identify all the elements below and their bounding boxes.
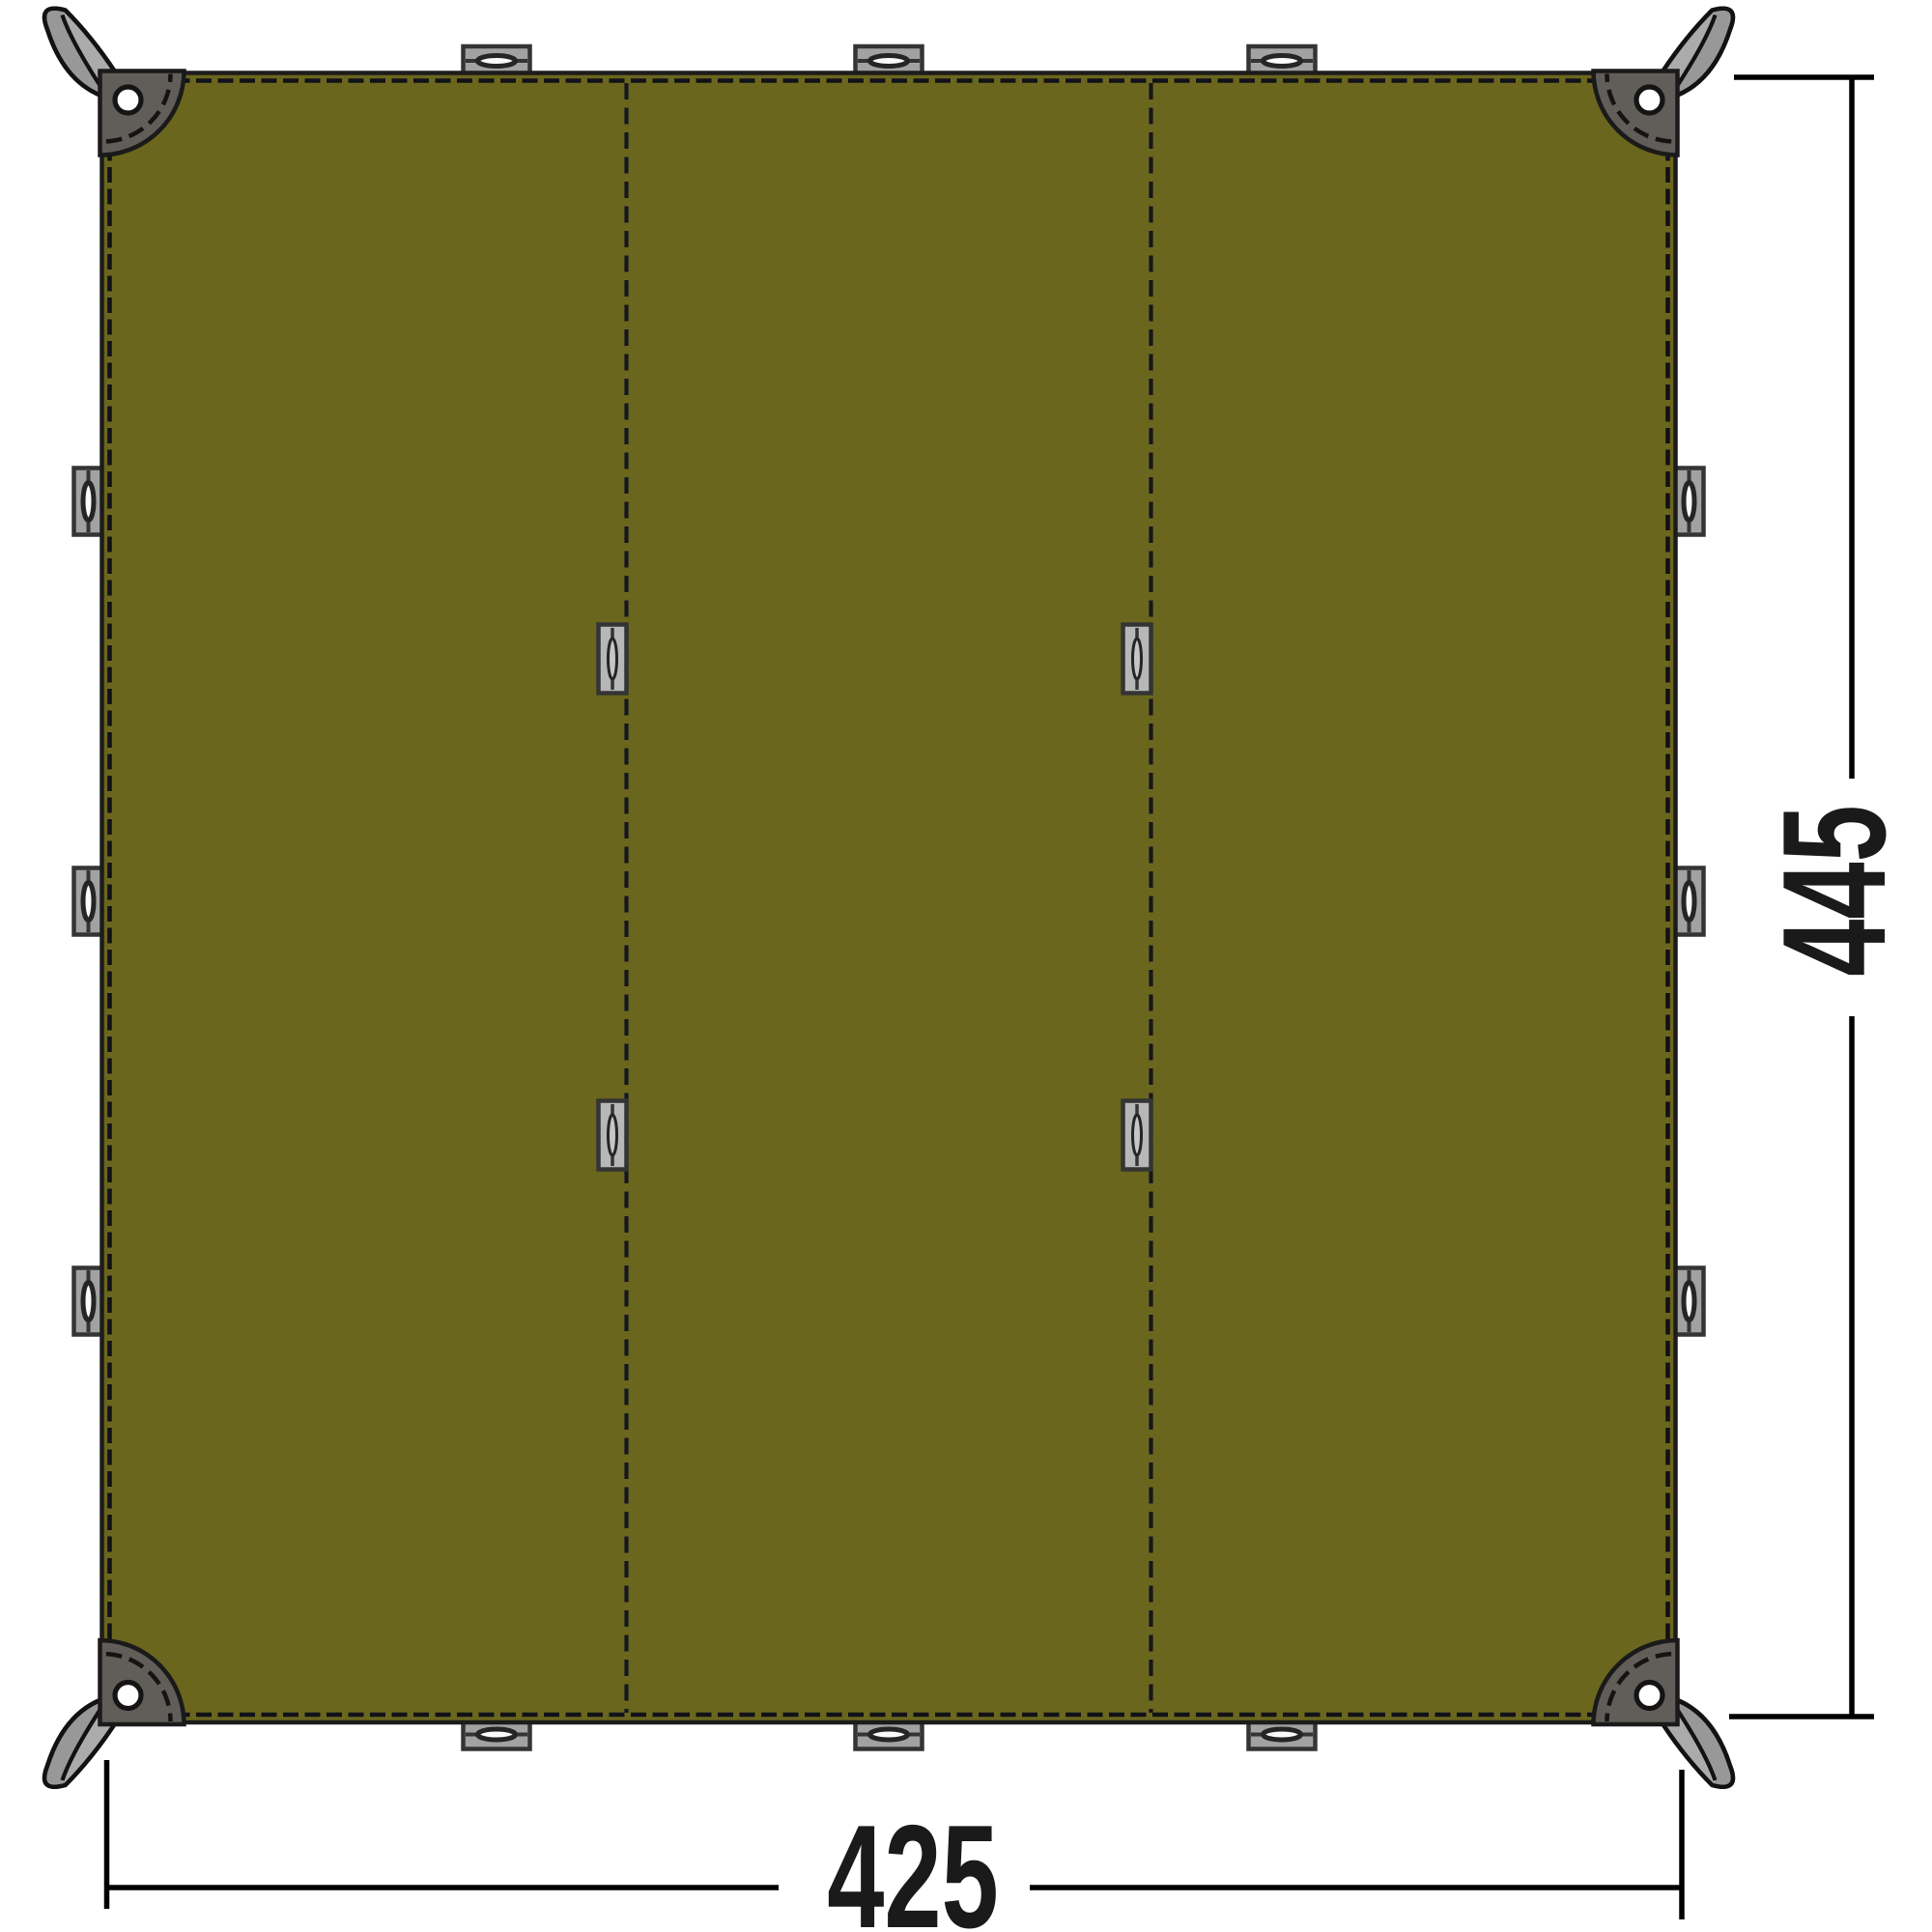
svg-text:445: 445 bbox=[1751, 805, 1916, 977]
svg-text:425: 425 bbox=[827, 1794, 999, 1932]
